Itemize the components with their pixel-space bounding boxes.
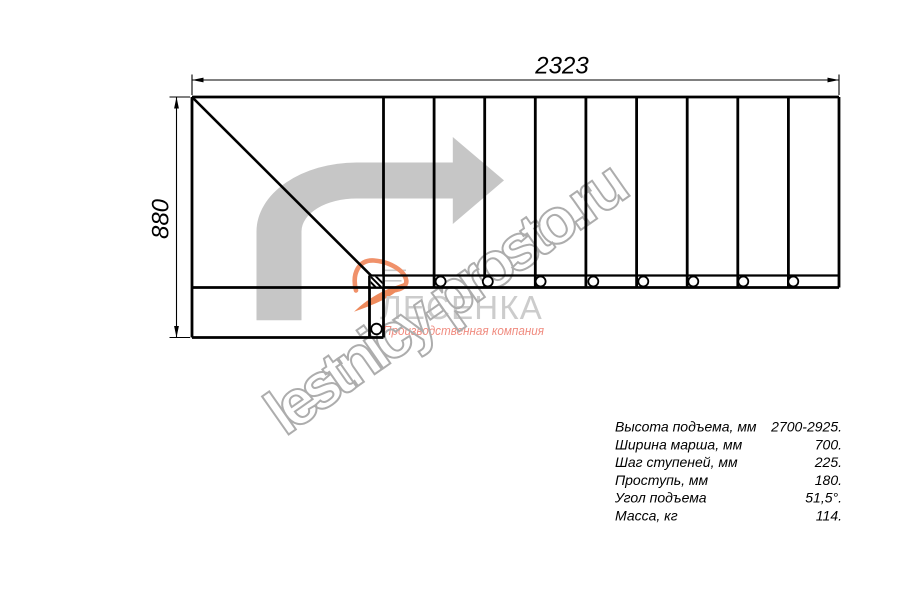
svg-text:Шаг ступеней, мм: Шаг ступеней, мм [615, 454, 738, 470]
svg-text:Ширина марша, мм: Ширина марша, мм [615, 436, 743, 452]
svg-text:2323: 2323 [534, 53, 589, 80]
svg-text:880: 880 [148, 198, 175, 239]
svg-text:Высота подъема, мм: Высота подъема, мм [615, 419, 757, 435]
svg-text:114.: 114. [816, 507, 842, 523]
svg-text:51,5°.: 51,5°. [805, 490, 842, 506]
svg-text:Угол подъема: Угол подъема [614, 490, 707, 506]
svg-text:Проступь, мм: Проступь, мм [615, 472, 709, 488]
svg-text:Масса, кг: Масса, кг [615, 507, 678, 523]
svg-text:225.: 225. [814, 454, 842, 470]
svg-text:700.: 700. [815, 436, 842, 452]
svg-text:180.: 180. [815, 472, 842, 488]
svg-text:2700-2925.: 2700-2925. [770, 419, 842, 435]
